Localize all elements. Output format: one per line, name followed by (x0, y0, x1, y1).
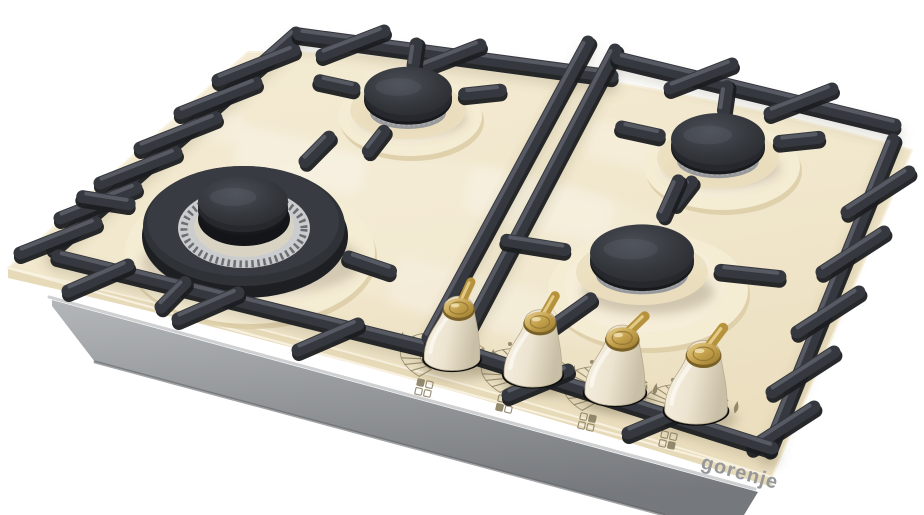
burner-cap-rear-right (671, 113, 765, 174)
burner-cap-front-right (590, 224, 694, 291)
gas-hob-render: gorenje (0, 0, 924, 515)
burner-cap-rear-left (364, 67, 452, 125)
product-photo-gas-hob: gorenje (0, 0, 924, 515)
burner-selector-icon-1 (415, 379, 434, 398)
burner-cap-front-left-wok (198, 176, 288, 235)
